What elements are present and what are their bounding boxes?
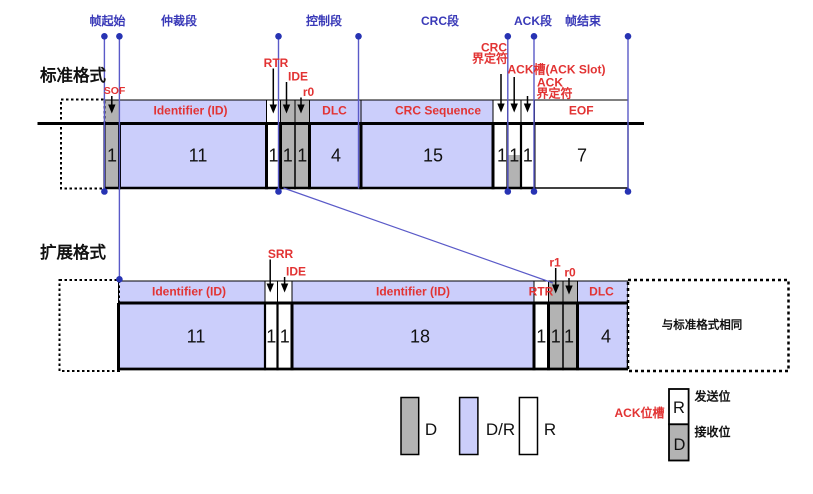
svg-text:18: 18 <box>410 327 430 347</box>
svg-text:标准格式: 标准格式 <box>40 65 107 85</box>
svg-text:Identifier (ID): Identifier (ID) <box>152 285 226 299</box>
svg-text:D: D <box>425 420 437 439</box>
svg-text:r1: r1 <box>549 256 561 270</box>
svg-text:1: 1 <box>497 146 507 166</box>
svg-text:ACK段: ACK段 <box>514 13 553 28</box>
svg-text:控制段: 控制段 <box>306 13 343 28</box>
svg-text:RTR: RTR <box>264 56 289 70</box>
svg-text:帧起始: 帧起始 <box>89 13 125 28</box>
svg-text:15: 15 <box>423 146 443 166</box>
svg-text:R: R <box>544 420 556 439</box>
svg-text:D/R: D/R <box>486 420 515 439</box>
svg-text:1: 1 <box>297 146 307 166</box>
svg-text:1: 1 <box>536 327 546 347</box>
svg-text:1: 1 <box>266 327 276 347</box>
svg-text:1: 1 <box>280 327 290 347</box>
svg-text:DLC: DLC <box>322 104 347 118</box>
svg-text:11: 11 <box>187 327 206 347</box>
svg-text:帧结束: 帧结束 <box>565 13 602 28</box>
svg-text:Identifier (ID): Identifier (ID) <box>154 104 228 118</box>
svg-text:与标准格式相同: 与标准格式相同 <box>662 318 743 332</box>
svg-text:D: D <box>674 436 686 454</box>
svg-text:ACK位槽: ACK位槽 <box>615 405 665 420</box>
svg-text:CRC段: CRC段 <box>421 13 460 28</box>
svg-text:1: 1 <box>551 327 561 347</box>
svg-text:DLC: DLC <box>589 285 614 299</box>
svg-text:ACK槽(ACK Slot): ACK槽(ACK Slot) <box>508 62 606 77</box>
svg-text:1: 1 <box>107 146 117 166</box>
svg-text:R: R <box>673 399 685 417</box>
svg-text:SOF: SOF <box>104 85 126 97</box>
svg-text:发送位: 发送位 <box>694 389 731 404</box>
svg-text:EOF: EOF <box>569 104 594 118</box>
svg-text:IDE: IDE <box>288 70 308 84</box>
svg-text:SRR: SRR <box>268 247 294 261</box>
svg-text:界定符: 界定符 <box>472 51 508 66</box>
svg-text:r0: r0 <box>303 85 315 99</box>
svg-text:CRC Sequence: CRC Sequence <box>395 104 481 118</box>
svg-text:RTR: RTR <box>529 285 554 299</box>
svg-text:1: 1 <box>564 327 574 347</box>
svg-text:仲裁段: 仲裁段 <box>161 13 198 28</box>
svg-text:1: 1 <box>523 146 533 166</box>
svg-text:1: 1 <box>268 146 278 166</box>
svg-text:4: 4 <box>601 327 611 347</box>
svg-text:扩展格式: 扩展格式 <box>40 242 107 262</box>
svg-text:接收位: 接收位 <box>695 424 731 439</box>
svg-text:1: 1 <box>283 146 293 166</box>
svg-text:11: 11 <box>189 146 208 166</box>
svg-text:4: 4 <box>331 146 341 166</box>
svg-text:Identifier (ID): Identifier (ID) <box>376 285 450 299</box>
svg-text:1: 1 <box>509 146 519 166</box>
svg-text:界定符: 界定符 <box>536 86 572 101</box>
svg-text:7: 7 <box>577 146 587 166</box>
svg-text:IDE: IDE <box>286 265 306 279</box>
svg-text:r0: r0 <box>564 266 576 280</box>
